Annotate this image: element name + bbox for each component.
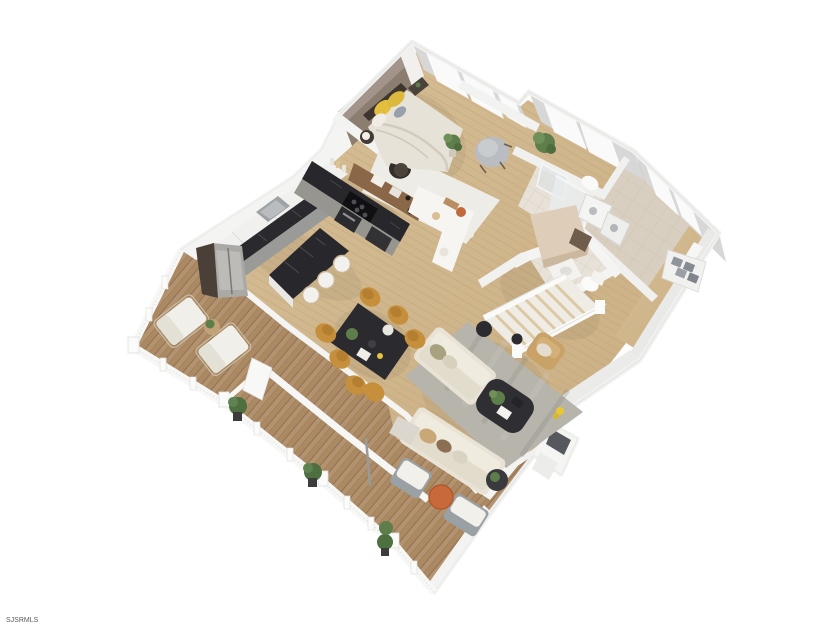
svg-text:SJSRMLS: SJSRMLS — [6, 617, 39, 624]
